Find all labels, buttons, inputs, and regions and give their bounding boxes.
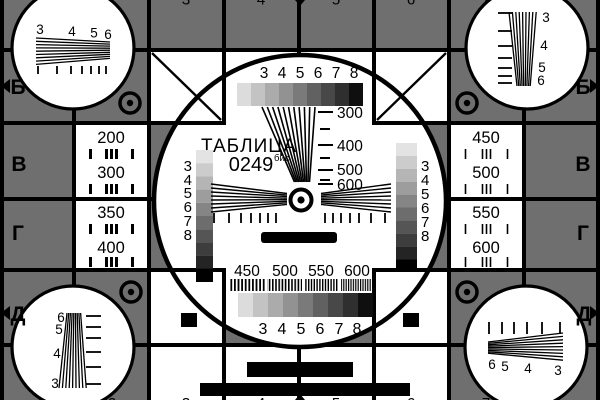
corner-circle-br-ring	[465, 286, 587, 400]
line-count-label: 200	[97, 129, 125, 147]
wedge-scale-label: 300	[337, 105, 363, 122]
right-strip-label: 8	[421, 228, 429, 245]
gray-step	[196, 269, 213, 282]
bottom-gray-label: 8	[353, 321, 362, 338]
sync-bar-long	[200, 383, 410, 396]
column-digit-bottom: 4	[257, 395, 265, 400]
line-count-label: 450	[472, 129, 500, 147]
bottom-gray-label: 4	[278, 321, 287, 338]
gray-step	[321, 83, 335, 106]
gray-step	[343, 293, 358, 317]
gray-step	[196, 242, 213, 255]
gray-step	[238, 293, 253, 317]
wedge-tl-label: 6	[104, 27, 112, 42]
line-count-label: 500	[472, 164, 500, 182]
grating-500	[267, 279, 302, 291]
tv-test-card: 3 4 5 6 3 4 5 6	[0, 0, 600, 400]
row-letter-left: Д	[11, 303, 26, 326]
wedge-tr-label: 3	[542, 10, 550, 25]
grating-450	[229, 279, 265, 291]
line-count-label: 600	[472, 239, 500, 257]
corner-circle-top-right: 3 4 5 6	[466, 0, 588, 109]
frequency-label: 550	[308, 263, 334, 280]
top-gray-label: 5	[296, 65, 305, 82]
wedge-br-label: 4	[524, 361, 532, 376]
gray-step	[396, 220, 417, 233]
gray-step	[396, 233, 417, 246]
gray-step	[196, 203, 213, 216]
wedge-bl-label: 3	[51, 376, 59, 391]
top-gray-label: 6	[314, 65, 323, 82]
gray-step	[358, 293, 373, 317]
gray-step	[396, 156, 417, 169]
grating-550	[304, 279, 338, 291]
gray-step	[265, 83, 279, 106]
bottom-gray-label: 5	[297, 321, 306, 338]
gray-step	[396, 246, 417, 259]
gray-step	[196, 190, 213, 203]
test-card-canvas: 3 4 5 6 3 4 5 6	[0, 0, 600, 400]
row-letter-left: В	[11, 153, 26, 176]
gray-step	[196, 216, 213, 229]
wedge-br-label: 6	[488, 357, 496, 372]
corner-circle-bottom-left: 6 5 4 3	[12, 286, 134, 400]
corner-circle-tl-ring	[12, 0, 134, 109]
reference-square-right	[403, 313, 419, 327]
frequency-label: 600	[344, 263, 370, 280]
wedge-tr-label: 6	[537, 73, 545, 88]
wedge-bl-label: 4	[53, 346, 61, 361]
gray-step	[396, 169, 417, 182]
row-letter-right: Д	[577, 303, 592, 326]
gray-step	[196, 163, 213, 176]
gray-step	[328, 293, 343, 317]
column-digit-bottom: 7	[482, 395, 490, 400]
row-letter-right: Б	[575, 76, 590, 99]
top-gray-label: 3	[260, 65, 269, 82]
gray-step	[396, 259, 417, 272]
bottom-gray-label: 3	[259, 321, 268, 338]
gray-step	[293, 83, 307, 106]
wedge-tl-label: 4	[68, 24, 76, 39]
gray-step	[335, 83, 349, 106]
gray-step	[251, 83, 265, 106]
column-digit-bottom: 5	[332, 395, 340, 400]
wedge-tl-label: 3	[36, 22, 44, 37]
gray-step	[196, 229, 213, 242]
gray-step	[307, 83, 321, 106]
wedge-br-label: 5	[501, 359, 509, 374]
top-gray-label: 7	[332, 65, 341, 82]
frequency-label: 500	[272, 263, 298, 280]
card-number: 0249	[229, 154, 274, 176]
reference-square-left	[181, 313, 197, 327]
column-digit-top: 5	[332, 0, 340, 9]
line-count-label: 350	[97, 204, 125, 222]
column-digit-top: 4	[257, 0, 265, 9]
frequency-label: 450	[234, 263, 260, 280]
top-gray-label: 8	[350, 65, 359, 82]
row-letter-left: Г	[12, 222, 24, 245]
gray-step	[196, 150, 213, 163]
gray-step	[349, 83, 363, 106]
left-strip-label: 8	[184, 227, 192, 244]
black-reference-bar	[261, 232, 337, 243]
gray-step	[237, 83, 251, 106]
gray-step	[283, 293, 298, 317]
line-count-label: 550	[472, 204, 500, 222]
column-digit-bottom: 3	[182, 395, 190, 400]
column-digit-top: 7	[482, 0, 490, 9]
gray-step	[196, 176, 213, 189]
row-letter-left: Б	[10, 76, 25, 99]
sync-bar-short	[247, 362, 353, 377]
gray-step	[279, 83, 293, 106]
wedge-tl-label: 5	[90, 26, 98, 41]
line-count-label: 300	[97, 164, 125, 182]
column-digit-bottom: 6	[407, 395, 415, 400]
corner-circle-top-left: 3 4 5 6	[12, 0, 134, 109]
grating-600	[341, 279, 372, 291]
wedge-bl-label: 5	[55, 322, 63, 337]
corner-circle-bottom-right: 6 5 4 3	[465, 286, 587, 400]
bottom-gray-label: 6	[316, 321, 325, 338]
wedge-scale-label: 400	[337, 138, 363, 155]
gray-step	[298, 293, 313, 317]
corner-circle-tr-ring	[466, 0, 588, 109]
gray-step	[313, 293, 328, 317]
bottom-gray-label: 7	[335, 321, 344, 338]
top-gray-label: 4	[278, 65, 287, 82]
wedge-tr-label: 4	[540, 38, 548, 53]
row-letter-right: В	[575, 153, 590, 176]
column-digit-bottom: 2	[108, 395, 116, 400]
gray-step	[253, 293, 268, 317]
gray-step	[396, 208, 417, 221]
column-digit-top: 6	[407, 0, 415, 9]
gray-step	[196, 256, 213, 269]
gray-step	[268, 293, 283, 317]
gray-step	[396, 195, 417, 208]
row-letter-right: Г	[577, 222, 589, 245]
wedge-br-label: 3	[554, 363, 562, 378]
gray-step	[396, 143, 417, 156]
column-digit-top: 3	[182, 0, 190, 9]
line-count-label: 400	[97, 239, 125, 257]
gray-step	[396, 182, 417, 195]
